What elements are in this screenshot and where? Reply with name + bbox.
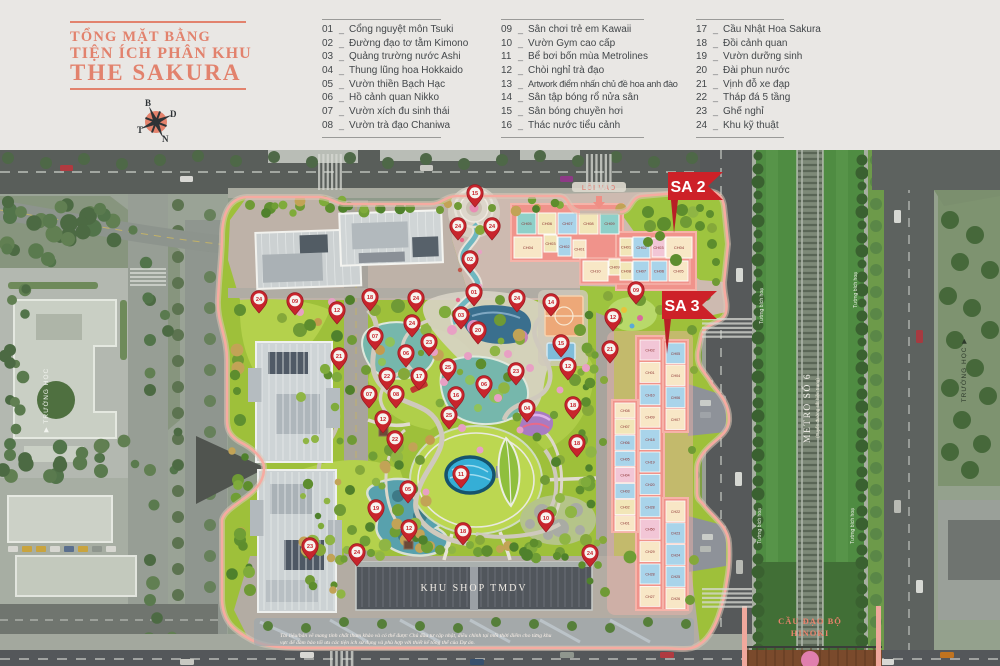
svg-text:24: 24 <box>256 297 263 303</box>
svg-text:CH01: CH01 <box>620 522 629 526</box>
svg-text:24: 24 <box>514 296 521 302</box>
svg-text:CẦU ĐẠO BỘ: CẦU ĐẠO BỘ <box>778 616 842 626</box>
svg-text:SA 3: SA 3 <box>665 298 700 315</box>
svg-text:CH02: CH02 <box>559 244 570 249</box>
svg-text:22: 22 <box>384 374 390 380</box>
svg-text:CH10: CH10 <box>590 269 601 274</box>
svg-text:24: 24 <box>587 551 594 557</box>
svg-text:CH01: CH01 <box>574 247 585 252</box>
svg-text:12: 12 <box>334 308 340 314</box>
svg-text:CH28: CH28 <box>645 505 654 509</box>
svg-text:16: 16 <box>453 393 459 399</box>
svg-text:CH08: CH08 <box>621 269 632 274</box>
svg-text:CH08: CH08 <box>583 221 594 226</box>
svg-text:22: 22 <box>392 437 398 443</box>
svg-text:CH06: CH06 <box>671 396 680 400</box>
svg-text:12: 12 <box>380 417 386 423</box>
svg-text:09: 09 <box>292 299 298 305</box>
svg-text:CH26: CH26 <box>671 597 680 601</box>
svg-text:CH01: CH01 <box>645 371 654 375</box>
svg-text:CH04: CH04 <box>620 473 629 477</box>
svg-text:23: 23 <box>307 544 313 550</box>
svg-text:(Tuyến đường sắt hiện trạng): (Tuyến đường sắt hiện trạng) <box>814 378 820 438</box>
svg-text:CH07: CH07 <box>671 418 680 422</box>
svg-text:CH04: CH04 <box>523 245 534 250</box>
svg-text:KHU SHOP TMDV: KHU SHOP TMDV <box>420 583 527 594</box>
svg-text:B: B <box>145 98 151 108</box>
svg-text:SA 2: SA 2 <box>671 179 706 196</box>
svg-text:18: 18 <box>367 295 373 301</box>
svg-text:06: 06 <box>481 382 487 388</box>
svg-text:N: N <box>162 134 169 144</box>
svg-text:Tường bích hoạ: Tường bích hoạ <box>759 288 765 324</box>
svg-text:CH09: CH09 <box>609 265 620 270</box>
svg-text:CH01: CH01 <box>621 245 632 250</box>
svg-text:12: 12 <box>565 364 571 370</box>
svg-text:D: D <box>170 109 177 119</box>
svg-text:21: 21 <box>336 354 342 360</box>
svg-text:CH25: CH25 <box>671 575 680 579</box>
svg-text:10: 10 <box>543 516 549 522</box>
svg-text:25: 25 <box>446 413 452 419</box>
svg-text:03: 03 <box>458 313 464 319</box>
svg-text:CH09: CH09 <box>645 416 654 420</box>
svg-text:17: 17 <box>416 374 422 380</box>
svg-text:T: T <box>137 125 143 135</box>
svg-text:09: 09 <box>633 288 639 294</box>
svg-text:15: 15 <box>472 191 478 197</box>
svg-text:CH05: CH05 <box>673 269 684 274</box>
svg-text:19: 19 <box>373 506 379 512</box>
svg-text:CH03: CH03 <box>620 490 629 494</box>
svg-text:CH20: CH20 <box>645 483 654 487</box>
svg-text:CH05: CH05 <box>521 221 532 226</box>
svg-text:CH05: CH05 <box>620 457 629 461</box>
svg-text:11: 11 <box>458 472 464 478</box>
svg-text:07: 07 <box>372 334 378 340</box>
svg-text:CH09: CH09 <box>604 221 615 226</box>
svg-text:CH07: CH07 <box>562 221 573 226</box>
svg-text:CH04: CH04 <box>671 374 680 378</box>
svg-text:12: 12 <box>610 315 616 321</box>
svg-text:CH50: CH50 <box>645 528 654 532</box>
svg-text:25: 25 <box>445 365 451 371</box>
svg-text:CH07: CH07 <box>636 269 647 274</box>
svg-text:23: 23 <box>426 340 432 346</box>
svg-text:24: 24 <box>409 321 416 327</box>
svg-text:21: 21 <box>607 347 613 353</box>
svg-text:18: 18 <box>460 529 466 535</box>
svg-text:CH02: CH02 <box>620 506 629 510</box>
svg-text:TRƯỜNG HỌC ▶: TRƯỜNG HỌC ▶ <box>959 338 968 403</box>
svg-text:CH10: CH10 <box>645 393 654 397</box>
svg-text:CH28: CH28 <box>645 573 654 577</box>
svg-text:15: 15 <box>558 341 564 347</box>
svg-text:18: 18 <box>574 441 580 447</box>
svg-text:Tường bích hoạ: Tường bích hoạ <box>853 272 859 308</box>
svg-text:06: 06 <box>403 351 409 357</box>
svg-text:24: 24 <box>489 224 496 230</box>
svg-text:CH06: CH06 <box>620 441 629 445</box>
svg-text:CH27: CH27 <box>645 595 654 599</box>
svg-text:14: 14 <box>548 300 555 306</box>
svg-text:CH06: CH06 <box>542 221 553 226</box>
svg-text:24: 24 <box>455 224 462 230</box>
svg-text:CH19: CH19 <box>645 461 654 465</box>
svg-text:CH03: CH03 <box>545 241 556 246</box>
svg-text:HINOKI: HINOKI <box>791 628 830 638</box>
svg-text:CH02: CH02 <box>645 349 654 353</box>
svg-text:CH18: CH18 <box>645 438 654 442</box>
svg-text:CH04: CH04 <box>674 245 685 250</box>
svg-text:05: 05 <box>405 487 411 493</box>
svg-text:04: 04 <box>524 406 531 412</box>
svg-text:12: 12 <box>406 526 412 532</box>
svg-text:CH03: CH03 <box>653 245 664 250</box>
svg-text:07: 07 <box>366 392 372 398</box>
svg-text:vực để đảm bảo tối ưu các tiện: vực để đảm bảo tối ưu các tiện ích sử dụ… <box>280 639 475 646</box>
svg-text:24: 24 <box>354 550 361 556</box>
svg-text:CH06: CH06 <box>654 269 665 274</box>
svg-text:Tường bích hoạ: Tường bích hoạ <box>757 508 763 544</box>
svg-text:24: 24 <box>413 296 420 302</box>
svg-text:CH08: CH08 <box>620 409 629 413</box>
svg-text:CH29: CH29 <box>645 550 654 554</box>
svg-text:02: 02 <box>467 257 473 263</box>
svg-text:18: 18 <box>570 403 576 409</box>
svg-text:CH23: CH23 <box>671 532 680 536</box>
svg-text:23: 23 <box>513 369 519 375</box>
svg-text:Tường bích hoạ: Tường bích hoạ <box>850 508 856 544</box>
svg-text:CH07: CH07 <box>620 425 629 429</box>
svg-text:CH05: CH05 <box>671 352 680 356</box>
svg-text:01: 01 <box>471 290 477 296</box>
svg-text:CH22: CH22 <box>671 510 680 514</box>
svg-text:CH24: CH24 <box>671 553 680 557</box>
svg-text:Tài liệu/bản vẽ mang tính chất: Tài liệu/bản vẽ mang tính chất tham khảo… <box>280 632 552 639</box>
svg-text:▶ TRƯỜNG HỌC: ▶ TRƯỜNG HỌC <box>41 368 50 432</box>
svg-text:20: 20 <box>475 328 481 334</box>
svg-text:08: 08 <box>393 392 399 398</box>
